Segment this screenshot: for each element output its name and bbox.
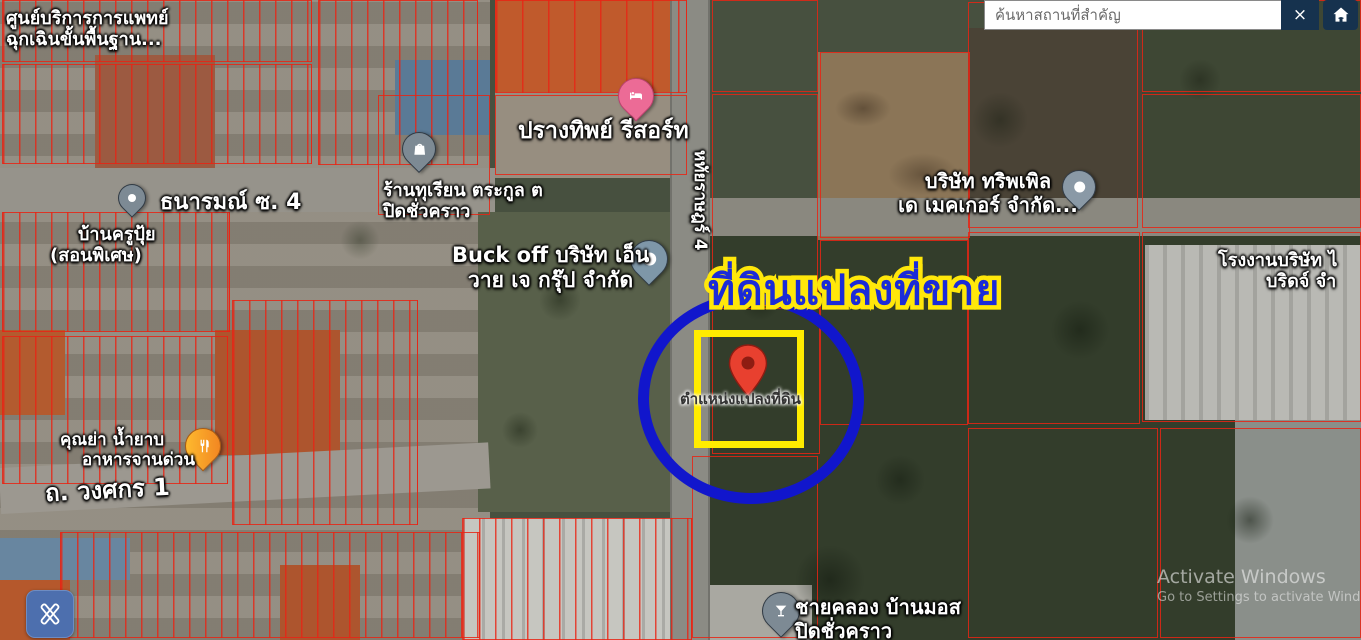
label-line: บริดจ์ จำ bbox=[1266, 271, 1337, 292]
parcel-grid bbox=[968, 428, 1158, 638]
label-chaikhlong: ชายคลอง บ้านมอส ปิดชั่วคราว bbox=[795, 596, 961, 640]
label-line: ศูนย์บริการการแพทย์ bbox=[6, 8, 169, 29]
label-line: คุณย่า น้ำยาบ bbox=[60, 430, 164, 450]
label-line: (สอนพิเศษ) bbox=[50, 245, 156, 266]
label-line: โรงงานบริษัท ไ bbox=[1218, 250, 1337, 271]
home-button[interactable] bbox=[1323, 0, 1358, 30]
label-line: เด เมคเกอร์ จำกัด... bbox=[898, 194, 1078, 218]
parcel-grid bbox=[2, 64, 312, 164]
draw-tools-button[interactable] bbox=[26, 590, 74, 638]
clear-search-button[interactable]: × bbox=[1281, 0, 1319, 30]
label-line: ปิดชั่วคราว bbox=[383, 201, 543, 222]
label-line: วาย เจ กรุ๊ป จำกัด bbox=[452, 268, 649, 293]
label-prangthip-resort: ปรางทิพย์ รีสอร์ท bbox=[518, 118, 689, 145]
bed-icon bbox=[628, 88, 644, 104]
label-line: ฉุกเฉินขั้นพื้นฐาน... bbox=[6, 29, 169, 50]
satellite-map[interactable]: ศูนย์บริการการแพทย์ ฉุกเฉินขั้นพื้นฐาน..… bbox=[0, 0, 1361, 640]
pin-caption: ตำแหน่งแปลงที่ดิน bbox=[680, 387, 801, 411]
parcel-grid bbox=[462, 518, 692, 640]
label-line: ปิดชั่วคราว bbox=[795, 620, 961, 640]
label-line: ร้านทุเรียน ตระกูล ต bbox=[383, 180, 543, 201]
parcel-grid bbox=[495, 0, 687, 93]
parcel-grid bbox=[232, 300, 418, 525]
label-thanarom-road: ธนารมณ์ ซ. 4 bbox=[160, 190, 301, 216]
dot-icon bbox=[128, 194, 136, 202]
sale-title: ที่ดินแปลงที่ขาย ที่ดินแปลงที่ขาย bbox=[708, 258, 1000, 323]
label-kru-pui: บ้านครูปุ้ย (สอนพิเศษ) bbox=[78, 224, 156, 266]
parcel-grid bbox=[712, 0, 818, 92]
label-line: Buck off บริษัท เอ็น bbox=[452, 243, 649, 267]
label-buck-off: Buck off บริษัท เอ็น วาย เจ กรุ๊ป จำกัด bbox=[452, 243, 649, 293]
label-line: บริษัท ทริพเพิล bbox=[925, 169, 1051, 193]
parcel-grid bbox=[1160, 428, 1361, 638]
label-medical-center: ศูนย์บริการการแพทย์ ฉุกเฉินขั้นพื้นฐาน..… bbox=[6, 8, 169, 50]
label-durian-shop: ร้านทุเรียน ตระกูล ต ปิดชั่วคราว bbox=[383, 180, 543, 222]
label-line: บ้านครูปุ้ย bbox=[78, 224, 156, 245]
home-icon bbox=[1331, 5, 1351, 25]
label-hathairat-road: หทัยราษฎร์ 4 bbox=[690, 150, 710, 251]
pencil-ruler-icon bbox=[37, 601, 63, 627]
sale-title-text: ที่ดินแปลงที่ขาย bbox=[708, 266, 1000, 314]
activate-windows-subtext: Go to Settings to activate Windo bbox=[1157, 590, 1361, 605]
parcel-grid bbox=[60, 532, 480, 638]
poi-marker[interactable] bbox=[118, 184, 146, 212]
label-line: อาหารจานด่วน bbox=[82, 450, 195, 470]
close-icon: × bbox=[1293, 5, 1307, 25]
parcel-grid bbox=[1142, 94, 1361, 228]
activate-windows-text: Activate Windows bbox=[1157, 566, 1326, 588]
shopping-bag-icon bbox=[412, 142, 427, 157]
label-line: ชายคลอง บ้านมอส bbox=[795, 595, 961, 619]
fork-knife-icon bbox=[196, 439, 211, 454]
label-factory: โรงงานบริษัท ไ บริดจ์ จำ bbox=[1218, 250, 1337, 292]
search-input[interactable] bbox=[984, 0, 1281, 30]
label-tripled-company: บริษัท ทริพเพิล เด เมคเกอร์ จำกัด... bbox=[898, 170, 1078, 217]
shop-marker[interactable] bbox=[402, 132, 436, 166]
label-grandma-food: คุณย่า น้ำยาบ อาหารจานด่วน bbox=[60, 430, 195, 470]
resort-marker[interactable] bbox=[618, 78, 654, 114]
cocktail-icon bbox=[773, 603, 789, 619]
